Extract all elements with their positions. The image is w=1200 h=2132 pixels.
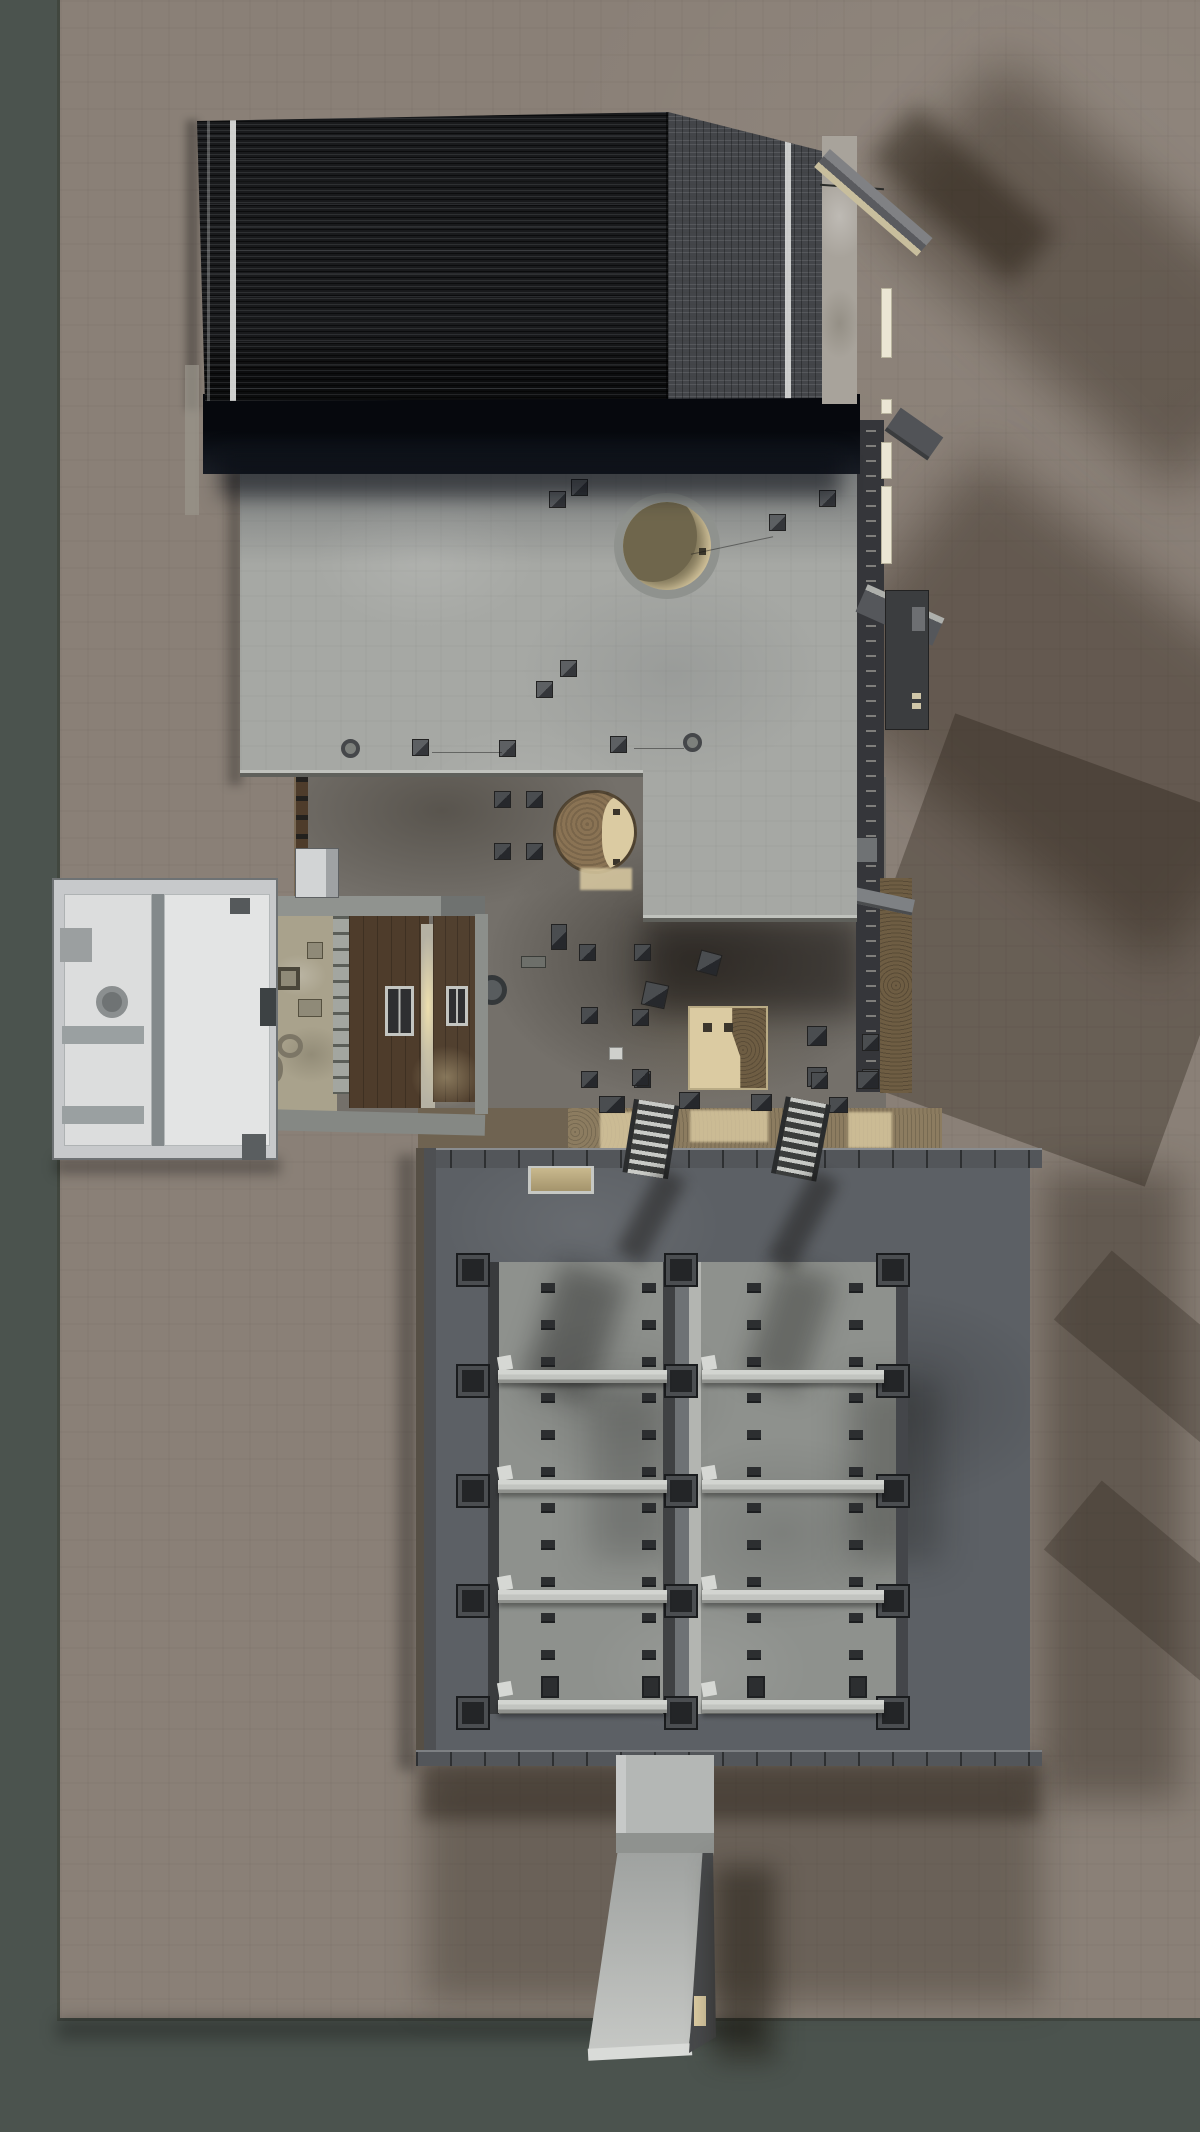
rack-clip <box>747 1540 761 1550</box>
roof-light-section <box>668 112 822 401</box>
annex-round-fitting <box>96 986 128 1018</box>
corridor-track-rail <box>333 916 349 1094</box>
floor-block <box>298 999 322 1017</box>
corner-stud <box>458 1586 488 1616</box>
shelf-end-tab <box>701 1465 717 1481</box>
opening-shadow-disc <box>614 493 697 582</box>
ramp-landing <box>616 1755 714 1837</box>
skylight-room <box>688 1006 768 1090</box>
concrete-cube <box>560 660 577 677</box>
pit-shadow-streak <box>850 1380 940 1560</box>
floor-ring <box>277 1034 303 1058</box>
concrete-cube <box>829 1097 848 1113</box>
rack-clip <box>541 1357 555 1367</box>
floor-fixture <box>724 1023 733 1032</box>
rack-clip <box>541 1540 555 1550</box>
rack-clip <box>849 1283 863 1293</box>
box-west-shadow <box>398 1155 416 1770</box>
rack-clip-large <box>642 1676 660 1698</box>
concrete-cube <box>526 791 543 808</box>
roof-seam <box>207 112 210 401</box>
rack-clip-large <box>849 1676 867 1698</box>
annex-handle <box>260 988 276 1026</box>
corridor-north-wall <box>271 896 485 916</box>
round-slab-opening <box>614 493 720 599</box>
wall-ladder-rail <box>866 430 876 1070</box>
slab-west-shadow <box>228 470 242 785</box>
rack-clip <box>541 1577 555 1587</box>
roof-dark-section <box>197 112 668 401</box>
shelf-beam <box>498 1700 667 1713</box>
rack-clip <box>747 1613 761 1623</box>
rack-clip <box>747 1467 761 1477</box>
shelf-beam <box>702 1590 884 1603</box>
annex-shadow <box>55 1158 280 1174</box>
rack-clip <box>642 1393 656 1403</box>
shelf-beam <box>498 1480 667 1493</box>
rack-clip <box>849 1613 863 1623</box>
box-west-wall <box>416 1148 436 1766</box>
rack-clip <box>642 1357 656 1367</box>
corridor-east-wall <box>475 914 488 1114</box>
floor-hatch <box>277 967 300 990</box>
rack-clip <box>642 1467 656 1477</box>
rack-clip <box>849 1503 863 1513</box>
rack-clip <box>642 1613 656 1623</box>
wall-light-panel <box>881 486 892 564</box>
roof-white-stripe <box>230 112 236 401</box>
rack-clip <box>747 1283 761 1293</box>
floor-block <box>307 942 323 959</box>
wall-light-panel <box>881 442 892 479</box>
shelf-end-tab <box>497 1465 513 1481</box>
wall-light-panel <box>881 399 892 414</box>
concrete-cube <box>494 791 511 808</box>
concrete-cube <box>632 1009 649 1026</box>
concrete-cube <box>581 1071 598 1088</box>
concrete-cube <box>679 1092 700 1109</box>
rack-clip <box>849 1430 863 1440</box>
rooftop-unit <box>885 590 929 730</box>
slab-drop-shadow <box>643 918 863 1013</box>
shelf-beam <box>702 1700 884 1713</box>
concrete-cube <box>610 736 627 753</box>
corner-stud <box>458 1255 488 1285</box>
annex-right-panel <box>164 894 270 1146</box>
rack-clip <box>541 1613 555 1623</box>
rack-clip <box>642 1430 656 1440</box>
pit-shadow-streak <box>590 1390 670 1560</box>
concrete-cube <box>769 514 786 531</box>
rooftop-chimney-box <box>295 848 339 898</box>
ramp-side-light <box>694 1996 706 2026</box>
corner-stud <box>458 1698 488 1728</box>
hinge-mark <box>613 809 620 815</box>
annex-hinge-block <box>230 898 250 914</box>
round-opening-lower <box>553 790 637 874</box>
roof-white-stripe <box>785 112 791 401</box>
lit-slot <box>580 868 632 890</box>
concrete-cube <box>579 944 596 961</box>
pipe-knob <box>341 739 360 758</box>
shelf-end-tab <box>497 1355 513 1371</box>
box-south-shadow-core <box>420 1760 1040 1820</box>
rack-clip <box>642 1320 656 1330</box>
concrete-cube <box>751 1094 772 1111</box>
corner-stud <box>666 1586 696 1616</box>
concrete-cube <box>551 924 567 950</box>
ramp-shadow <box>714 1866 776 2061</box>
render-canvas <box>0 0 1200 2132</box>
shelf-beam <box>702 1480 884 1493</box>
rack-clip <box>642 1577 656 1587</box>
rack-clip <box>541 1320 555 1330</box>
shelf-end-tab <box>701 1575 717 1591</box>
corner-stud <box>458 1476 488 1506</box>
guy-wire <box>432 752 502 753</box>
rack-clip <box>747 1503 761 1513</box>
shelf-beam <box>702 1370 884 1383</box>
rack-clip <box>541 1503 555 1513</box>
roof-ridge-line <box>666 112 668 401</box>
recessed-vent <box>528 1166 594 1194</box>
corridor-south-wall <box>271 1109 485 1136</box>
rack-clip <box>747 1393 761 1403</box>
corner-stud <box>666 1698 696 1728</box>
rack-clip <box>541 1430 555 1440</box>
wall-cap <box>855 838 877 862</box>
corner-stud <box>666 1366 696 1396</box>
rack-clip <box>642 1283 656 1293</box>
shelf-end-tab <box>701 1681 717 1697</box>
concrete-cube <box>632 1069 649 1086</box>
shelf-beam <box>498 1370 667 1383</box>
box-north-wall <box>416 1148 1042 1168</box>
rack-clip <box>849 1393 863 1403</box>
corner-stud <box>878 1255 908 1285</box>
shelf-end-tab <box>497 1681 513 1697</box>
rack-clip <box>642 1540 656 1550</box>
rack-clip <box>849 1357 863 1367</box>
concrete-cube <box>857 1071 879 1089</box>
concrete-cube <box>599 1096 625 1113</box>
annex-gray-square <box>60 928 92 962</box>
rack-clip <box>849 1577 863 1587</box>
annex-cross-bar <box>62 1026 144 1044</box>
concrete-cube <box>811 1072 828 1089</box>
low-bar <box>521 956 546 968</box>
rack-clip <box>747 1650 761 1660</box>
slab-edge <box>240 770 643 777</box>
concrete-cube <box>641 981 669 1009</box>
wall-light-panel <box>881 288 892 358</box>
concrete-cube <box>499 740 516 757</box>
rack-clip <box>642 1503 656 1513</box>
unit-panel <box>912 607 925 631</box>
concrete-cube <box>581 1007 598 1024</box>
shelf-end-tab <box>701 1355 717 1371</box>
rack-clip-large <box>541 1676 559 1698</box>
corner-stud <box>666 1255 696 1285</box>
shelf-beam <box>498 1590 667 1603</box>
hinge-mark <box>613 859 620 865</box>
concrete-cube <box>634 944 651 961</box>
light-spill <box>411 1046 481 1108</box>
rack-clip <box>849 1540 863 1550</box>
unit-light <box>912 703 921 709</box>
rack-clip <box>747 1430 761 1440</box>
corner-stud <box>666 1476 696 1506</box>
concrete-cube <box>536 681 553 698</box>
annex-divider-wall <box>152 894 164 1146</box>
lit-patch <box>848 1112 892 1148</box>
door-vision-panel <box>385 986 414 1036</box>
rack-clip <box>849 1320 863 1330</box>
slab-west-wall <box>185 365 199 515</box>
corner-stud <box>458 1366 488 1396</box>
eave-soft-shadow <box>220 455 840 497</box>
box-south-wall <box>416 1750 1042 1766</box>
cork-floor <box>716 1008 768 1090</box>
pipe-knob <box>683 733 702 752</box>
floor-fixture <box>703 1023 712 1032</box>
white-cube <box>609 1047 623 1060</box>
lit-patch <box>690 1110 768 1142</box>
concrete-cube <box>494 843 511 860</box>
ramp-bend <box>616 1833 714 1853</box>
concrete-cube <box>526 843 543 860</box>
concrete-cube <box>807 1026 827 1046</box>
rack-clip <box>642 1650 656 1660</box>
annex-cross-bar <box>62 1106 144 1124</box>
rack-clip <box>541 1650 555 1660</box>
rack-clip <box>747 1577 761 1587</box>
corrugated-roof <box>197 112 822 401</box>
rack-clip <box>541 1283 555 1293</box>
rack-clip <box>541 1467 555 1477</box>
corridor <box>271 896 487 1142</box>
unit-light <box>912 693 921 699</box>
rack-clip <box>747 1320 761 1330</box>
rack-clip <box>541 1393 555 1403</box>
rack-clip <box>849 1467 863 1477</box>
rack-clip-large <box>747 1676 765 1698</box>
annex-building <box>52 878 278 1160</box>
rack-clip <box>849 1650 863 1660</box>
annex-corner-block <box>242 1134 266 1160</box>
door-vision-panel <box>446 986 468 1026</box>
slab-edge <box>643 915 857 922</box>
shelf-end-tab <box>497 1575 513 1591</box>
concrete-cube <box>412 739 429 756</box>
guy-wire <box>634 748 684 749</box>
rack-clip <box>747 1357 761 1367</box>
concrete-cube <box>862 1034 879 1051</box>
